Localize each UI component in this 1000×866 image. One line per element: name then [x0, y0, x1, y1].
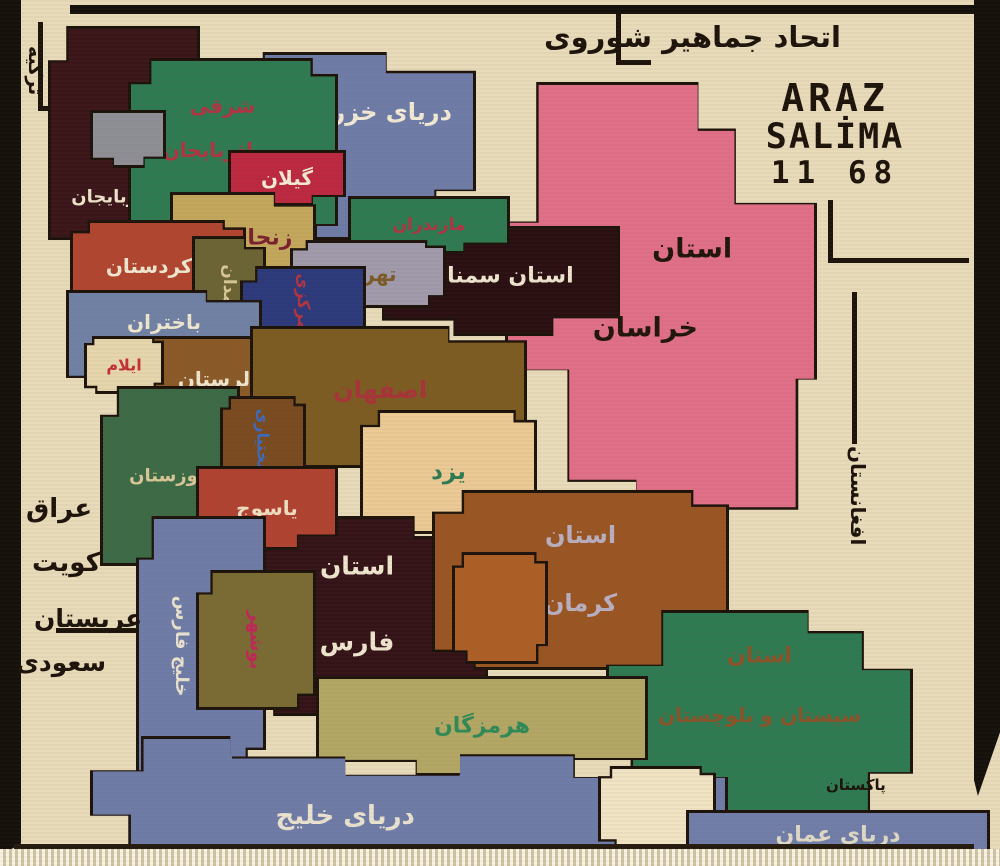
region-ilam: ایلام — [84, 336, 164, 394]
label-pakistan: پاکستان — [826, 776, 886, 794]
carpet-fringe — [0, 849, 1000, 866]
khorasan-label-line1: استان — [652, 234, 732, 265]
label-saudi-arabia-line2: سعودی — [16, 648, 106, 677]
kerman-label-line2: کرمان — [544, 589, 617, 617]
border-line — [852, 292, 891, 444]
label-kuwait: کویت — [32, 548, 101, 578]
isfahan-label: اصفهان — [333, 376, 427, 404]
sistan-label-line2: سیستان و بلوچستان — [658, 703, 861, 727]
top-inscription-soviet-union: اتحاد جماهیر شوروی — [400, 20, 985, 54]
persian-gulf-west-label: خلیج فارس — [171, 596, 192, 697]
kordestan-label: کردستان — [106, 254, 193, 278]
carpet-top-edge — [70, 5, 975, 14]
label-saudi-arabia-line1: عربستان — [34, 604, 142, 633]
semnan-label: استان سمنان — [428, 263, 573, 288]
carpet-right-edge — [974, 0, 1000, 796]
weaver-signature: ARAZ SALİMA 11 68 — [726, 78, 944, 190]
east-azerbaijan-label-line1: شرقی — [190, 94, 255, 118]
mazandaran-label: مازندران — [392, 215, 465, 235]
kerman-label-line1: استان — [545, 521, 616, 549]
bushehr-label: بوشهر — [246, 611, 267, 670]
region-fill — [455, 555, 545, 661]
region-unlabeled-patch — [452, 552, 548, 664]
persian-gulf-label: دریای خلیج — [275, 801, 414, 831]
carpet-map-of-iran: اتحاد جماهیر شوروی ARAZ SALİMA 11 68 دری… — [0, 0, 1000, 866]
gilan-label: گیلان — [261, 166, 313, 190]
region-fill — [93, 113, 163, 165]
yazd-label: یزد — [431, 459, 466, 485]
markazi-label: مرکزی — [293, 273, 313, 330]
chaharmahal-label: بختیاری — [254, 409, 273, 469]
border-line — [828, 200, 969, 263]
label-iraq: عراق — [26, 494, 92, 524]
label-turkey: ترکیه — [24, 46, 46, 95]
region-bushehr: بوشهر — [196, 570, 316, 710]
carpet-left-edge — [0, 0, 21, 852]
signature-line-2: SALİMA — [726, 119, 944, 157]
ilam-label: ایلام — [106, 356, 141, 375]
signature-line-3: 11 68 — [726, 157, 944, 190]
caspian-sea-label: دریای خزر — [331, 98, 452, 126]
sistan-label-line1: استان — [727, 644, 792, 669]
bakhtaran-label: باختران — [127, 310, 201, 334]
fars-label-line1: استان — [320, 552, 394, 581]
signature-line-1: ARAZ — [726, 78, 944, 119]
label-afghanistan: افغانستان — [846, 446, 870, 545]
fars-label-line2: فارس — [320, 628, 395, 657]
hormozgan-label: هرمزگان — [434, 714, 530, 739]
